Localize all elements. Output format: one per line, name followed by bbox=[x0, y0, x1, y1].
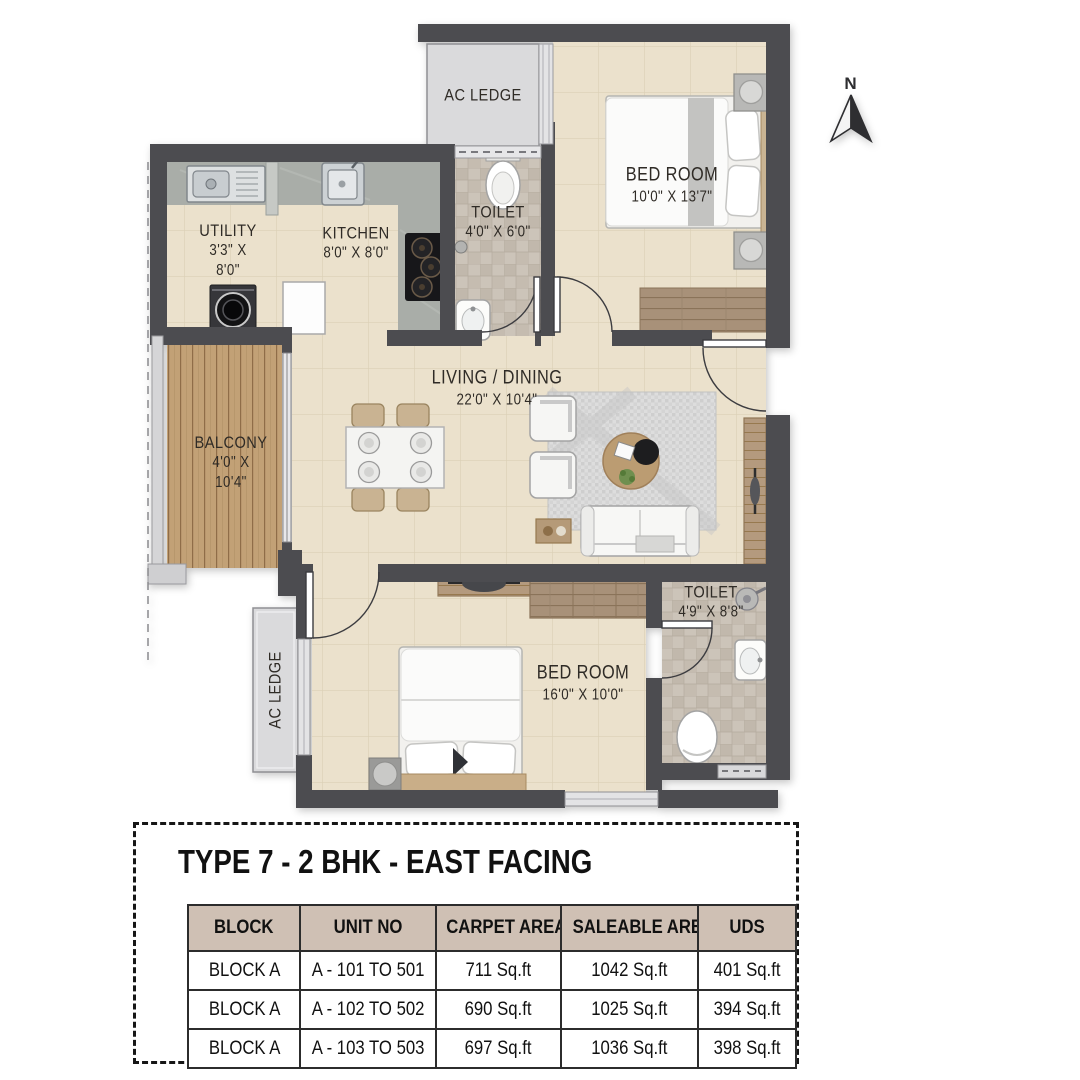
bed-1-icon bbox=[606, 92, 768, 232]
plan-title: TYPE 7 - 2 BHK - EAST FACING bbox=[178, 843, 592, 881]
bedroom-1-wardrobe bbox=[640, 288, 766, 332]
room-label-balcony: BALCONY 4'0" X 10'4" bbox=[195, 432, 268, 492]
col-header-saleable-area: SALEABLE AREA bbox=[561, 905, 698, 951]
stool-icon bbox=[369, 758, 401, 790]
side-table-icon bbox=[536, 519, 571, 543]
room-label-kitchen: KITCHEN 8'0" X 8'0" bbox=[322, 223, 389, 264]
room-label-living: LIVING / DINING 22'0" X 10'4" bbox=[432, 366, 563, 409]
room-label-ac-ledge-top: AC LEDGE bbox=[444, 84, 521, 105]
sofa-icon bbox=[581, 506, 699, 556]
ac-ledge-top-window bbox=[539, 44, 553, 144]
room-label-toilet-1: TOILET 4'0" X 6'0" bbox=[465, 202, 530, 243]
north-arrow-icon bbox=[831, 95, 871, 141]
balcony-railing bbox=[152, 336, 163, 568]
north-label: N bbox=[844, 74, 857, 94]
room-label-toilet-2: TOILET 4'9" X 8'8" bbox=[678, 582, 743, 623]
kitchen-sink-icon bbox=[322, 158, 364, 205]
balcony-corner-ledge bbox=[148, 564, 186, 584]
fridge-icon bbox=[283, 282, 325, 334]
info-panel: TYPE 7 - 2 BHK - EAST FACING BLOCK UNIT … bbox=[133, 822, 799, 1064]
table-header-row: BLOCK UNIT NO CARPET AREA SALEABLE AREA … bbox=[188, 905, 796, 951]
entry-console-icon bbox=[744, 418, 766, 564]
col-header-uds: UDS bbox=[698, 905, 796, 951]
room-label-bedroom-2: BED ROOM 16'0" X 10'0" bbox=[537, 661, 629, 704]
washbasin-2-icon bbox=[735, 640, 766, 680]
dining-table-icon bbox=[346, 427, 444, 488]
table-row: BLOCK A A - 103 TO 503 697 Sq.ft 1036 Sq… bbox=[188, 1029, 796, 1068]
washing-machine-icon bbox=[210, 285, 256, 334]
table-row: BLOCK A A - 102 TO 502 690 Sq.ft 1025 Sq… bbox=[188, 990, 796, 1029]
floor-plan-page: AC LEDGE BED ROOM 10'0" X 13'7" TOILET 4… bbox=[0, 0, 1080, 1080]
col-header-block: BLOCK bbox=[188, 905, 300, 951]
utility-sink-icon bbox=[187, 166, 265, 202]
col-header-carpet-area: CARPET AREA bbox=[436, 905, 561, 951]
col-header-unit-no: UNIT NO bbox=[300, 905, 436, 951]
table-row: BLOCK A A - 101 TO 501 711 Sq.ft 1042 Sq… bbox=[188, 951, 796, 990]
unit-table: BLOCK UNIT NO CARPET AREA SALEABLE AREA … bbox=[187, 904, 797, 1069]
room-label-ac-ledge-left: AC LEDGE bbox=[264, 651, 285, 728]
bed-2-icon bbox=[394, 647, 526, 792]
coffee-table-icon bbox=[603, 433, 659, 489]
room-label-utility: UTILITY 3'3" X 8'0" bbox=[199, 220, 256, 280]
room-label-bedroom-1: BED ROOM 10'0" X 13'7" bbox=[626, 163, 718, 206]
